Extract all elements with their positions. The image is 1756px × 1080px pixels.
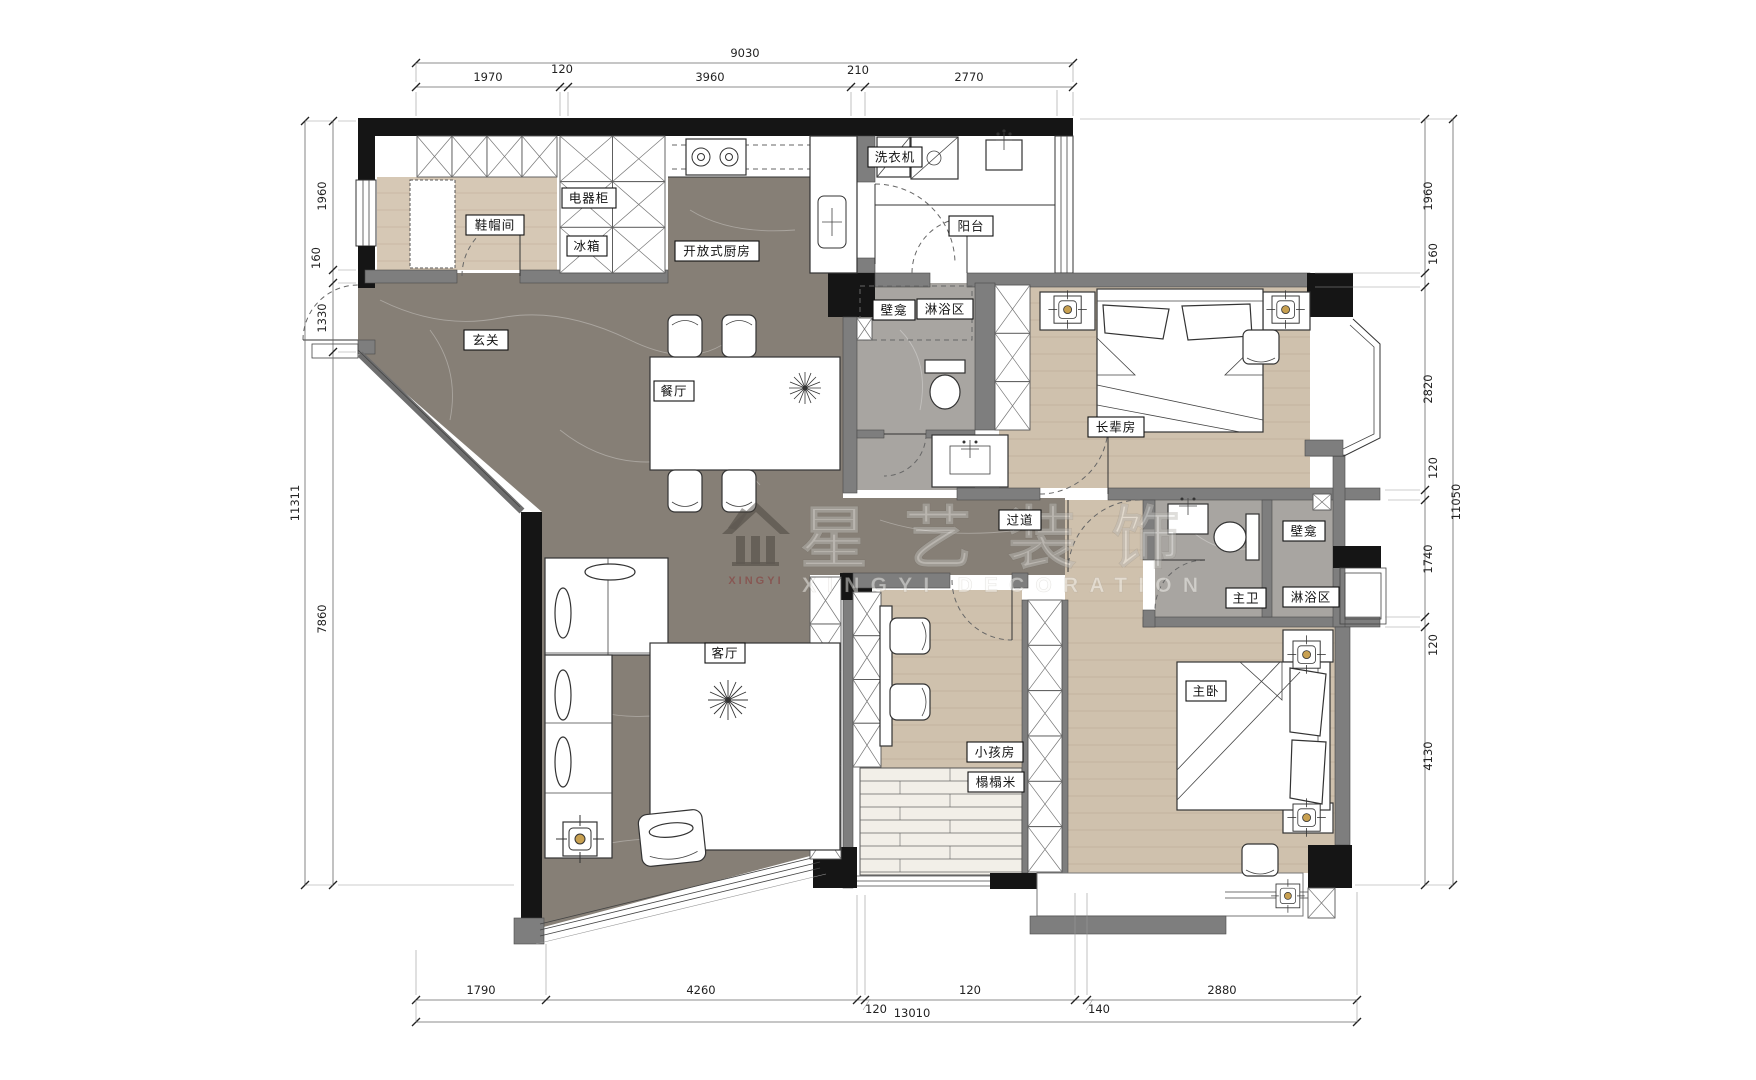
dimension-value: 120	[1426, 634, 1440, 656]
room-label-master_bath: 主卫	[1226, 588, 1266, 608]
room-label-entry: 玄关	[464, 330, 508, 350]
room-label-open_kitchen: 开放式厨房	[675, 241, 759, 261]
floor-plan-drawing: XINGYI 星艺装饰 XINGYI DECORATION 鞋帽间电器柜冰箱开放…	[0, 0, 1756, 1080]
dimension-value: 120	[959, 983, 981, 997]
room-label-niche: 壁龛	[873, 300, 915, 320]
niche-box	[1313, 494, 1331, 510]
ceiling-lamp-icon	[1287, 635, 1325, 673]
dimension-value: 1960	[315, 181, 329, 210]
kids-wardrobe	[853, 592, 881, 767]
ceiling-lamp-icon	[1287, 798, 1325, 836]
desk-chair	[890, 684, 930, 720]
svg-text:小孩房: 小孩房	[975, 745, 1016, 760]
dimension-value: 1960	[1421, 181, 1435, 210]
svg-text:淋浴区: 淋浴区	[925, 303, 966, 317]
room-label-niche: 壁龛	[1283, 521, 1325, 541]
ceiling-lamp-icon	[1048, 290, 1086, 328]
svg-text:冰箱: 冰箱	[573, 239, 600, 254]
dimension-value: 160	[1426, 243, 1440, 265]
stool	[1242, 844, 1278, 876]
dimension-value: 4130	[1421, 741, 1435, 770]
dimension-value: 3960	[695, 70, 724, 84]
dimension-value: 4260	[686, 983, 715, 997]
dimension-value: 120	[551, 62, 573, 76]
room-label-elder_room: 长辈房	[1088, 417, 1144, 437]
dining-table	[650, 357, 840, 470]
room-label-shower: 淋浴区	[917, 299, 973, 319]
dimension-value: 2820	[1421, 374, 1435, 403]
dimension-value: 120	[1426, 457, 1440, 479]
room-label-shower: 淋浴区	[1283, 587, 1339, 607]
svg-text:淋浴区: 淋浴区	[1291, 591, 1332, 605]
room-label-balcony: 阳台	[949, 216, 993, 236]
svg-text:洗衣机: 洗衣机	[875, 150, 916, 165]
hall-closet	[1028, 600, 1062, 872]
room-label-washer: 洗衣机	[868, 147, 922, 167]
shoe-wardrobe	[417, 136, 557, 177]
room-label-tatami: 榻榻米	[968, 772, 1024, 792]
floor-plan-page: XINGYI 星艺装饰 XINGYI DECORATION 鞋帽间电器柜冰箱开放…	[0, 0, 1756, 1080]
svg-text:电器柜: 电器柜	[569, 192, 610, 206]
dimension-value: 210	[847, 63, 869, 77]
svg-text:主卫: 主卫	[1232, 592, 1259, 606]
dimension-top: 1970120396021027709030	[412, 46, 1077, 116]
svg-text:主卧: 主卧	[1192, 685, 1219, 699]
plant	[708, 680, 748, 720]
svg-text:客厅: 客厅	[711, 646, 738, 661]
dimension-value: 1970	[473, 70, 502, 84]
room-label-living: 客厅	[705, 643, 745, 663]
svg-text:长辈房: 长辈房	[1096, 420, 1137, 435]
dining-chair	[668, 315, 702, 357]
room-label-dining: 餐厅	[654, 381, 694, 401]
dimension-value: 1740	[1421, 544, 1435, 573]
room-label-shoe_room: 鞋帽间	[466, 215, 524, 235]
svg-text:壁龛: 壁龛	[1290, 524, 1317, 539]
ceiling-lamp-icon	[556, 815, 604, 863]
svg-text:过道: 过道	[1006, 514, 1033, 528]
svg-text:阳台: 阳台	[957, 219, 984, 234]
svg-text:榻榻米: 榻榻米	[976, 776, 1017, 790]
dimension-value: 160	[309, 247, 323, 269]
desk-chair	[890, 618, 930, 654]
ceiling-lamp-icon	[1271, 879, 1305, 913]
room-label-kids_room: 小孩房	[967, 742, 1023, 762]
dimension-value: 2770	[954, 70, 983, 84]
dimension-value: 11050	[1449, 484, 1463, 521]
svg-text:开放式厨房: 开放式厨房	[683, 244, 751, 259]
stove	[686, 139, 746, 175]
dimension-value: 11311	[288, 485, 302, 522]
svg-text:鞋帽间: 鞋帽间	[475, 218, 516, 233]
stool	[1243, 330, 1279, 364]
corner-cabinet	[1308, 888, 1335, 918]
dimension-value: 9030	[730, 46, 759, 60]
ceiling-lamp-icon	[1266, 290, 1304, 328]
dining-chair	[668, 470, 702, 512]
dimension-value: 7860	[315, 604, 329, 633]
elder-bed	[1097, 289, 1263, 432]
svg-text:餐厅: 餐厅	[660, 384, 687, 399]
room-label-appliance_cabinet: 电器柜	[562, 188, 616, 208]
elder-wardrobe	[995, 285, 1030, 430]
dimension-value: 140	[1088, 1002, 1110, 1016]
dimension-value: 1330	[315, 303, 329, 332]
svg-text:玄关: 玄关	[472, 333, 499, 348]
watermark-icon-label: XINGYI	[728, 575, 783, 587]
dining-chair	[722, 470, 756, 512]
dimension-value: 1790	[466, 983, 495, 997]
dimension-value: 13010	[894, 1006, 931, 1020]
dining-chair	[722, 315, 756, 357]
room-label-hallway: 过道	[999, 510, 1041, 530]
room-label-fridge: 冰箱	[567, 236, 607, 256]
room-label-master_bedroom: 主卧	[1186, 681, 1226, 701]
dimension-value: 2880	[1207, 983, 1236, 997]
dimension-value: 120	[865, 1002, 887, 1016]
armchair	[637, 809, 706, 867]
svg-text:壁龛: 壁龛	[880, 303, 907, 318]
niche-box	[857, 318, 872, 340]
